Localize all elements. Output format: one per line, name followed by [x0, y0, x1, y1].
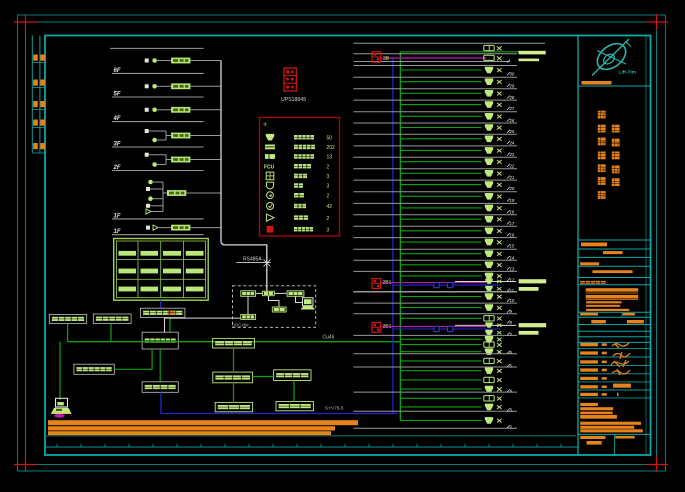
svg-text:13: 13 — [510, 266, 515, 271]
svg-text:3: 3 — [327, 184, 330, 190]
svg-text:16: 16 — [510, 232, 515, 237]
svg-text:1F: 1F — [114, 213, 121, 219]
svg-text:3: 3 — [327, 227, 330, 233]
svg-text:d:: d: — [264, 122, 268, 127]
svg-text:42: 42 — [327, 204, 333, 210]
svg-text:20: 20 — [509, 186, 515, 191]
svg-text:4F: 4F — [113, 116, 121, 122]
svg-text:1F: 1F — [114, 229, 121, 235]
svg-text:RS485A: RS485A — [243, 257, 262, 263]
svg-text:UPS18845: UPS18845 — [281, 97, 306, 103]
svg-text:3B1: 3B1 — [383, 280, 392, 286]
svg-text:26: 26 — [509, 118, 515, 123]
svg-text:30: 30 — [510, 72, 515, 77]
svg-text:3B1: 3B1 — [383, 324, 392, 330]
svg-text:13: 13 — [327, 155, 333, 161]
svg-text:19: 19 — [510, 198, 515, 203]
svg-text:202: 202 — [327, 145, 336, 151]
svg-text:Cu46: Cu46 — [323, 335, 335, 341]
svg-text:29: 29 — [509, 83, 515, 88]
svg-text:27: 27 — [509, 106, 515, 111]
svg-text:3: 3 — [327, 174, 330, 180]
svg-text:3F: 3F — [114, 142, 121, 148]
svg-text:25: 25 — [509, 129, 515, 134]
svg-text:23: 23 — [509, 152, 515, 157]
svg-text:17: 17 — [510, 221, 515, 226]
svg-text:18: 18 — [510, 210, 515, 215]
svg-text:2: 2 — [327, 164, 330, 170]
svg-text:DDC#8#: DDC#8# — [232, 323, 249, 328]
svg-text:2: 2 — [327, 193, 330, 199]
svg-text:10: 10 — [510, 298, 515, 303]
svg-text:Lift-Tim: Lift-Tim — [619, 70, 637, 76]
svg-text:3B: 3B — [383, 56, 390, 62]
svg-text:15: 15 — [510, 244, 515, 249]
svg-text:5F: 5F — [114, 92, 121, 98]
svg-text:24: 24 — [509, 140, 515, 145]
svg-text:SYV75-5: SYV75-5 — [325, 405, 344, 410]
svg-text:2: 2 — [327, 216, 330, 222]
svg-text:28: 28 — [509, 95, 515, 100]
svg-text:50: 50 — [327, 135, 333, 141]
svg-text:FCU: FCU — [264, 164, 275, 170]
svg-text:6F: 6F — [114, 68, 121, 74]
svg-text:21: 21 — [509, 175, 515, 180]
svg-text:22: 22 — [509, 163, 515, 168]
svg-text:2F: 2F — [113, 165, 121, 171]
svg-text:14: 14 — [510, 255, 515, 260]
